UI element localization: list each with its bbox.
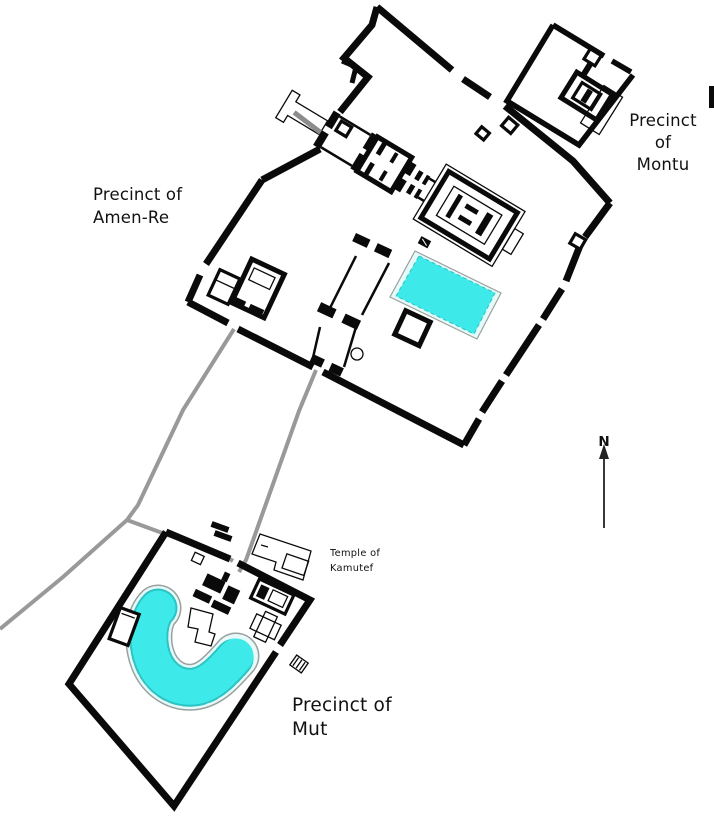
great-temple-of-amen-re (268, 77, 534, 272)
east-gate-block (570, 234, 586, 250)
isheru-lake (149, 608, 236, 687)
roadside-chapel (351, 348, 363, 360)
gate-bar-1 (211, 521, 230, 533)
label-mut-line2: Mut (292, 719, 328, 740)
north-arrow (599, 444, 609, 528)
great-court-south-wall (321, 147, 352, 166)
amen-re-north-annex-wall (342, 61, 356, 83)
gate-block-ne-2 (502, 117, 518, 133)
label-north: N (598, 434, 609, 450)
gate-bar-2 (214, 530, 233, 542)
amen-re-precinct (188, 7, 610, 445)
mut-temple-halls (188, 608, 215, 646)
pylon-4 (414, 170, 423, 181)
pylon-4-s (406, 184, 415, 195)
hatched-chapel (290, 655, 308, 673)
pylon-1-south-tower (313, 130, 329, 149)
north-south-route (309, 233, 392, 377)
gate-block-ne-1 (476, 127, 489, 140)
pylon-5-s (414, 188, 423, 199)
label-kamutef-line1: Temple of (329, 548, 380, 559)
label-amen-re-line2: Amen-Re (93, 208, 169, 227)
karnak-map-svg: Precinct of Amen-Re Precinct of Montu Pr… (0, 0, 714, 820)
temple-a (251, 579, 294, 614)
mut-precinct (69, 521, 310, 806)
lake-chapel (418, 236, 431, 248)
label-montu-line1: Precinct (629, 111, 697, 130)
label-amen-re-line1: Precinct of (93, 185, 183, 204)
pylon-8 (317, 302, 361, 330)
amen-re-enclosure-wall (188, 7, 610, 445)
court-wall-b (362, 263, 389, 315)
small-gate-chapel (191, 552, 204, 564)
pylon-7 (352, 233, 392, 258)
label-montu-line3: Montu (637, 155, 690, 174)
karnak-map: Precinct of Amen-Re Precinct of Montu Pr… (0, 0, 714, 820)
lake-side-building (395, 311, 430, 346)
label-kamutef-line2: Kamutef (330, 563, 374, 574)
court-wall-a (330, 256, 356, 308)
khonsu-temple (229, 258, 285, 319)
avenue-east (239, 370, 316, 572)
edge-fragment (709, 86, 714, 108)
court-wall-d (344, 327, 356, 367)
pylon-5 (422, 175, 431, 186)
label-montu-line2: of (655, 133, 672, 152)
label-mut-line1: Precinct of (292, 695, 392, 716)
avenue-west (0, 329, 234, 629)
